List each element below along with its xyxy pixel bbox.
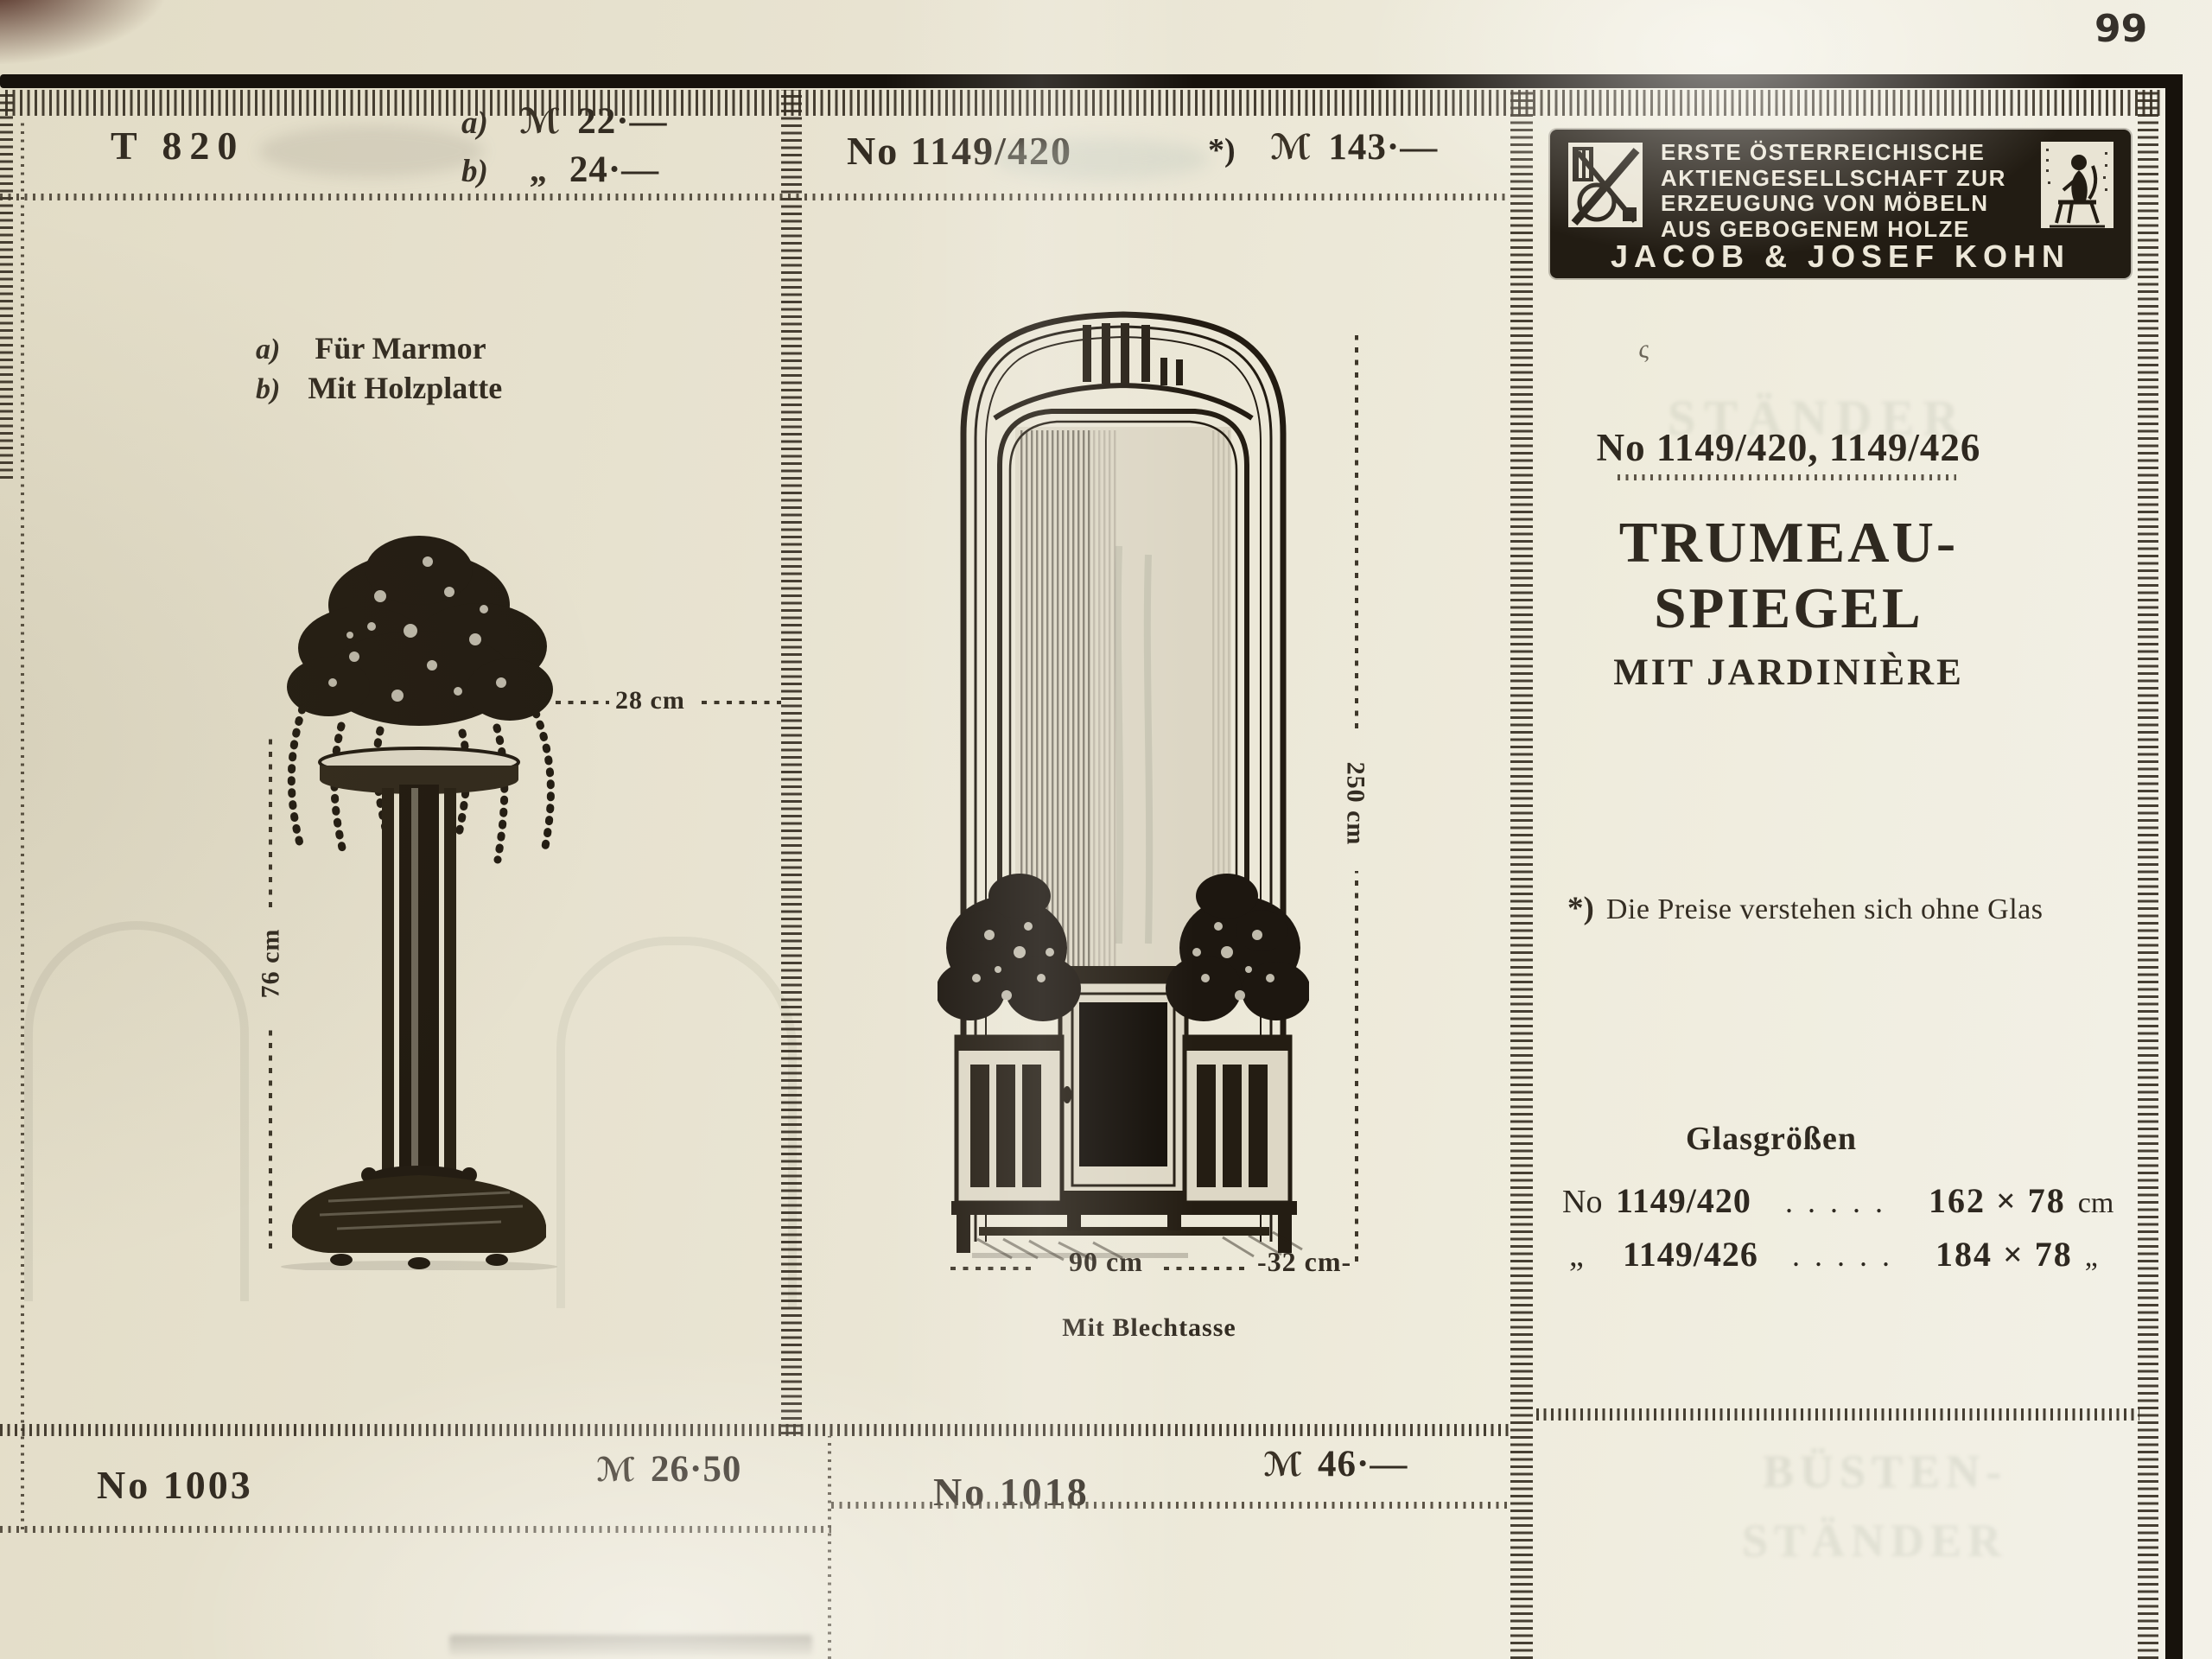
rule-no1018-bottom [831,1502,1510,1509]
dim-line-250cm-top [1355,335,1358,728]
price-footnote-mark: *) [1208,131,1236,169]
note-a-label: a) [256,334,280,366]
dim-line-250cm-bottom [1355,871,1358,1262]
glass-row2-leader: . . . . . [1792,1237,1922,1274]
divider-middle-right [1510,90,1533,1659]
model-line-underline [1618,474,1956,480]
rule-no1003-bottom [0,1526,831,1533]
glass-row1-leader: . . . . . [1785,1184,1915,1220]
price-row-1018: ℳ 46·— [1263,1443,1408,1485]
dim-line-90cm-left [950,1267,1037,1270]
glass-sizes-header: Glasgrößen [1555,1120,1987,1158]
glass-size-row-2: „ 1149/426 . . . . . 184 × 78 „ [1562,1234,2133,1282]
glass-row1-no: No [1562,1183,1616,1221]
dim-line-28cm-right [702,701,781,704]
logo-line-1: ERSTE ÖSTERREICHISCHE [1661,140,2006,166]
comb-border-right-inner [2138,90,2158,1659]
dim-label-250cm: 250 cm [1340,762,1370,846]
price-row-1003: ℳ 26·50 [596,1448,741,1491]
dim-line-32cm [1164,1267,1249,1270]
rule-bottom-row-top [0,1424,1510,1436]
logo-line-2: AKTIENGESELLSCHAFT ZUR [1661,166,2006,192]
glass-row2-model: 1149/426 [1623,1234,1792,1274]
rule-bottom-cells-divider [828,1436,831,1659]
ditto-mark: „ [530,149,547,190]
currency-mark-icon: ℳ [596,1451,635,1489]
dim-line-28cm-left [556,701,609,704]
dim-label-250cm-wrap: 250 cm [1310,739,1400,868]
monogram-icon [1562,137,1649,233]
footnote-row: *) Die Preise verstehen sich ohne Glas [1567,890,2043,927]
rule-header-row [0,194,1510,200]
dim-line-76cm-bottom [269,1028,272,1249]
company-name: JACOB & JOSEF KOHN [1550,238,2131,275]
trademark-figure-icon [2036,137,2119,233]
divider-left-middle [781,90,802,1434]
dim-label-28cm: 28 cm [615,686,685,715]
glass-row2-no: „ [1562,1236,1623,1274]
note-a-text: Für Marmor [315,330,486,366]
rule-right-panel-bottom [1536,1408,2139,1421]
glass-row2-unit: „ [2085,1241,2098,1274]
logo-text-lines: ERSTE ÖSTERREICHISCHE AKTIENGESELLSCHAFT… [1661,140,2006,242]
page-border-right [2165,74,2183,1659]
currency-mark-icon: ℳ [1270,128,1311,168]
caption-mit-blechtasse: Mit Blechtasse [1037,1313,1262,1343]
glass-row2-size: 184 × 78 [1935,1234,2073,1274]
rule-left-column [21,123,24,1529]
price-row-middle: ℳ 143·— [1270,126,1438,168]
bleed-through-text-bottom-2: STÄNDER [1742,1514,2007,1567]
glass-row1-size: 162 × 78 [1929,1180,2066,1221]
page-number: 99 [2094,7,2147,51]
price-1003-value: 26·50 [651,1448,741,1491]
logo-line-3: ERZEUGUNG VON MÖBELN [1661,191,2006,217]
glass-row1-unit: cm [2078,1187,2114,1220]
footnote-text: Die Preise verstehen sich ohne Glas [1606,893,2044,926]
page-border-top [0,74,2183,88]
variant-b-label: b) [461,153,488,190]
note-row-b: b) Mit Holzplatte [256,370,502,406]
glass-size-row-1: No 1149/420 . . . . . 162 × 78 cm [1562,1180,2133,1229]
model-number-t820: T 820 [111,123,245,168]
erased-text-smudge [259,125,484,177]
glass-row1-model: 1149/420 [1616,1180,1785,1221]
note-row-a: a) Für Marmor [256,330,486,366]
model-number-1003: No 1003 [97,1462,253,1508]
bleed-through-bottom-edge [449,1635,812,1656]
comb-border-left [0,90,13,479]
trumeau-mirror-illustration [938,287,1309,1272]
bleed-through-chair-left [24,921,249,1301]
subtitle-mit-jardiniere: MIT JARDINIÈRE [1555,652,2022,694]
handwritten-mark: ς [1637,334,1651,365]
price-1018-value: 46·— [1318,1443,1408,1485]
comb-border-top [5,90,2164,116]
erased-text-smudge-middle [994,138,1210,180]
kohn-logo-block: ERSTE ÖSTERREICHISCHE AKTIENGESELLSCHAFT… [1550,130,2131,278]
photo-corner-shadow [0,0,166,64]
catalog-page: 99 T 820 a) ℳ 22·— b) „ 24·— a) Für Marm… [0,0,2212,1659]
note-b-label: b) [256,373,280,406]
bleed-through-text-bottom-1: BÜSTEN- [1763,1445,2007,1498]
price-row-b: b) „ 24·— [461,149,659,191]
dim-line-76cm-top [269,734,272,907]
footnote-mark: *) [1567,890,1594,927]
flower-stand-illustration [251,510,596,1270]
currency-mark-icon: ℳ [1263,1446,1302,1484]
bleed-through-text-mid: STÄNDER [1668,389,1967,447]
note-b-text: Mit Holzplatte [308,370,502,406]
title-spiegel: SPIEGEL [1555,575,2022,642]
price-middle-value: 143·— [1328,126,1438,168]
price-b-value: 24·— [569,149,659,191]
title-trumeau: TRUMEAU- [1555,510,2022,576]
